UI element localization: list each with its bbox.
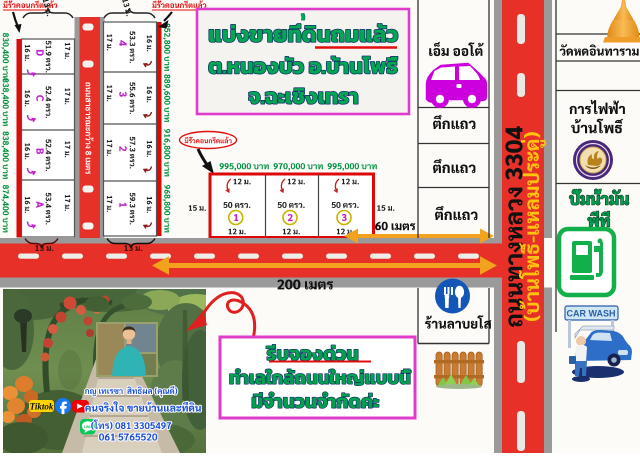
svg-text:Tiktok: Tiktok [30,402,54,412]
svg-text:CAR WASH: CAR WASH [567,309,616,319]
